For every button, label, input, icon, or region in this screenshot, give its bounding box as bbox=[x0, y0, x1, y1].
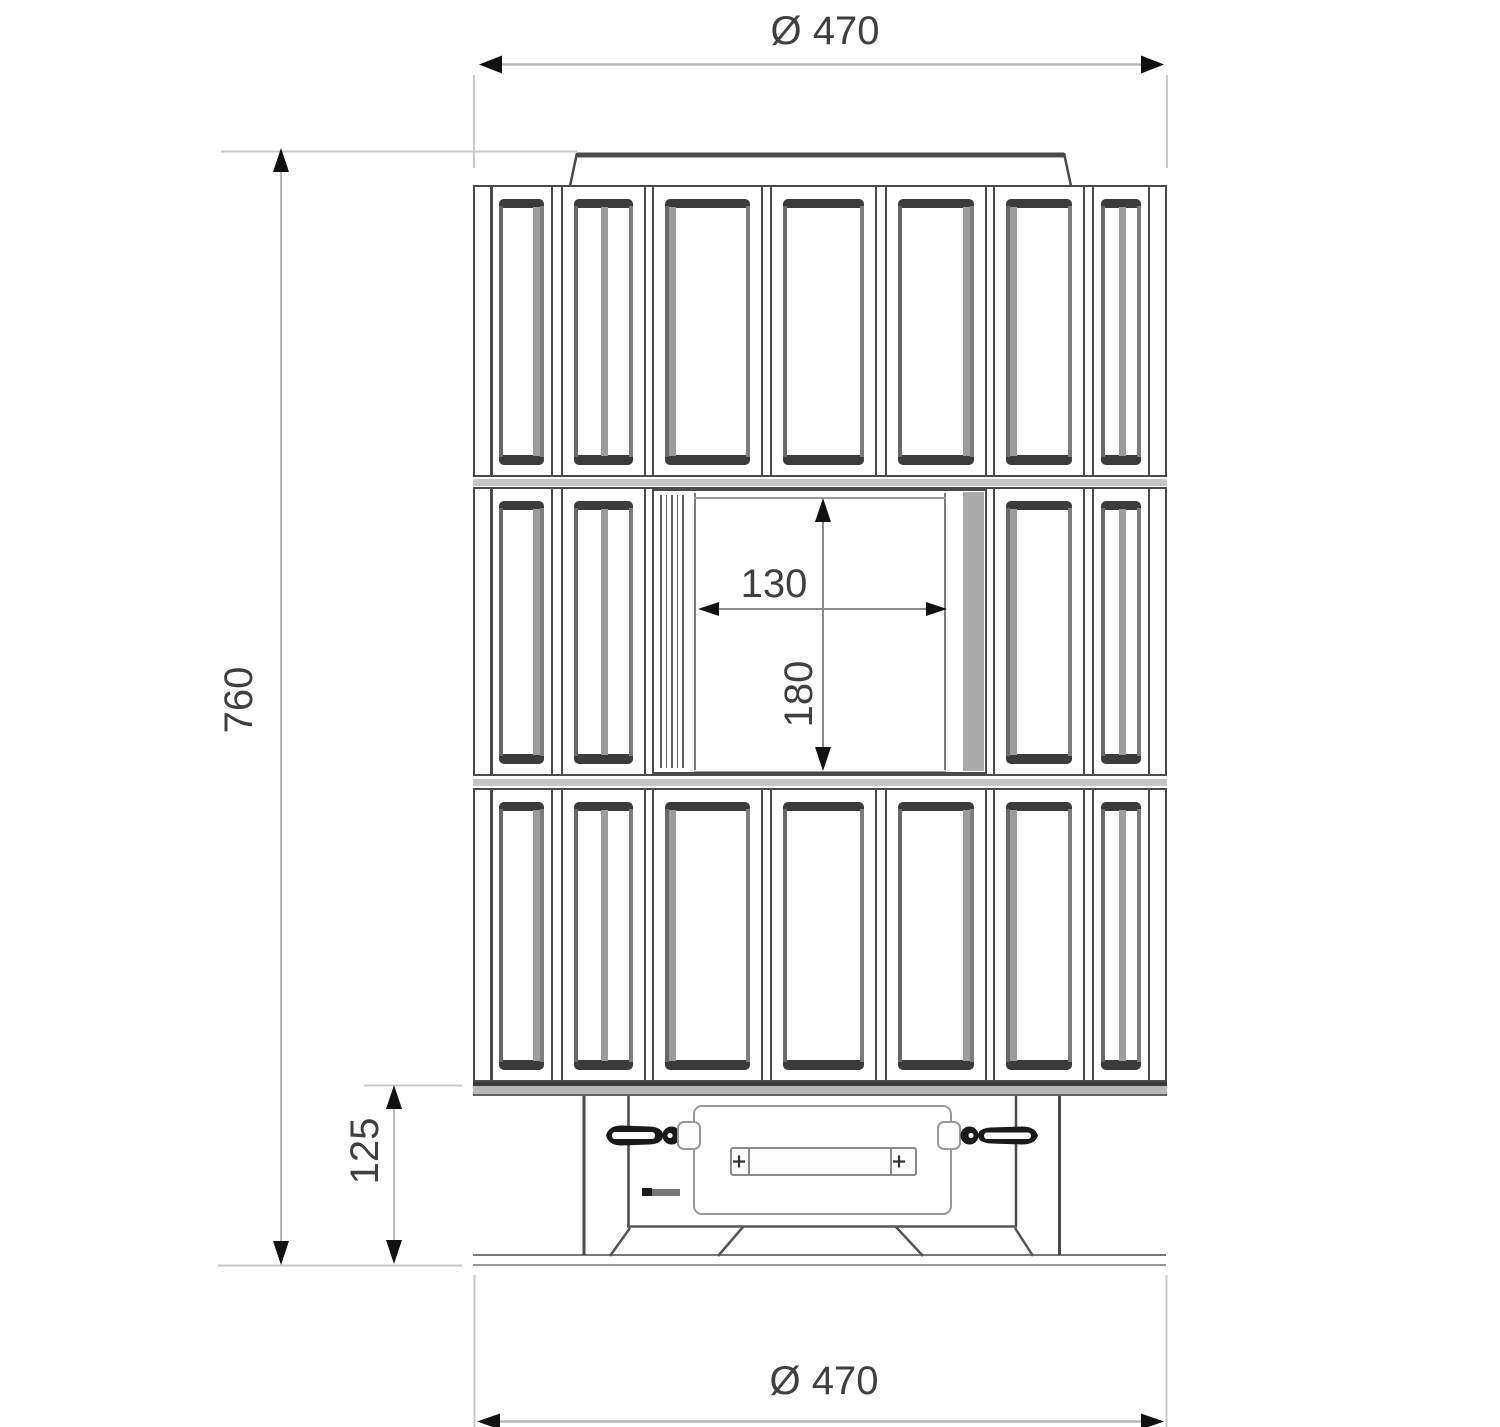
svg-text:130: 130 bbox=[741, 562, 808, 606]
svg-text:180: 180 bbox=[777, 661, 821, 728]
svg-text:125: 125 bbox=[343, 1118, 387, 1185]
svg-text:Ø 470: Ø 470 bbox=[771, 9, 880, 53]
svg-text:760: 760 bbox=[217, 667, 261, 734]
svg-text:Ø 470: Ø 470 bbox=[770, 1359, 879, 1403]
